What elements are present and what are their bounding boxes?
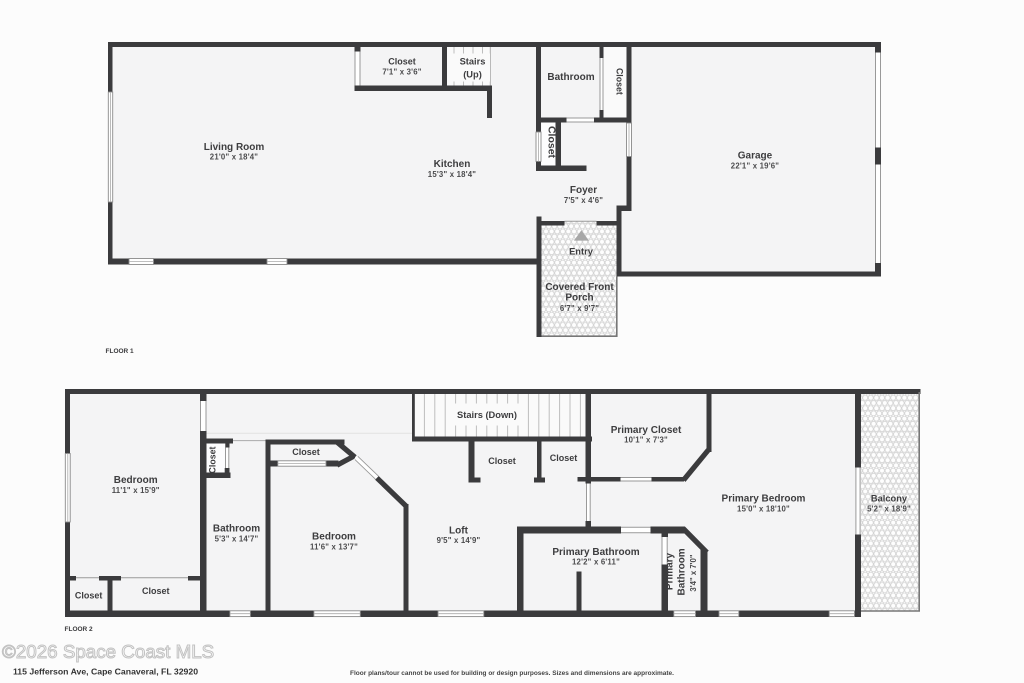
svg-text:Covered Front: Covered Front [545,282,614,293]
svg-text:FLOOR 1: FLOOR 1 [106,348,135,355]
svg-text:115 Jefferson Ave, Cape Canave: 115 Jefferson Ave, Cape Canaveral, FL 32… [13,666,198,676]
svg-text:6'7" x 9'7": 6'7" x 9'7" [560,304,599,313]
svg-text:15'0" x 18'10": 15'0" x 18'10" [737,505,790,514]
svg-text:22'1" x 19'6": 22'1" x 19'6" [731,161,779,170]
svg-text:11'6" x 13'7": 11'6" x 13'7" [310,542,358,551]
svg-text:Loft: Loft [449,525,469,536]
svg-text:Bedroom: Bedroom [114,475,158,486]
svg-text:Closet: Closet [546,126,558,159]
svg-text:15'3" x 18'4": 15'3" x 18'4" [428,170,476,179]
svg-text:Garage: Garage [738,151,773,162]
svg-text:Bedroom: Bedroom [312,532,356,543]
svg-text:Closet: Closet [208,446,218,473]
svg-text:Bathroom: Bathroom [676,548,687,595]
svg-text:(Up): (Up) [463,69,482,79]
svg-text:9'5" x 14'9": 9'5" x 14'9" [437,536,481,545]
svg-text:11'1" x 15'9": 11'1" x 15'9" [112,486,160,495]
svg-text:Closet: Closet [75,590,103,600]
svg-text:Kitchen: Kitchen [434,159,471,170]
svg-text:7'1" x 3'6": 7'1" x 3'6" [382,67,421,76]
svg-text:©2026 Space Coast MLS: ©2026 Space Coast MLS [2,641,214,662]
svg-text:Bathroom: Bathroom [547,72,594,83]
svg-text:Closet: Closet [388,57,416,67]
svg-text:Closet: Closet [488,456,516,466]
svg-text:Floor plans/tour cannot be use: Floor plans/tour cannot be used for buil… [350,670,674,677]
svg-text:Porch: Porch [565,293,593,304]
svg-text:Stairs (Down): Stairs (Down) [457,410,517,420]
svg-text:3'4" x 7'0": 3'4" x 7'0" [689,554,698,591]
svg-text:Bathroom: Bathroom [213,524,260,535]
svg-text:Closet: Closet [550,453,578,463]
svg-text:Primary: Primary [665,552,676,590]
svg-text:Closet: Closet [292,447,320,457]
svg-text:10'1" x 7'3": 10'1" x 7'3" [624,436,668,445]
svg-text:Stairs: Stairs [460,56,486,66]
svg-text:FLOOR 2: FLOOR 2 [65,626,94,633]
svg-text:Primary Closet: Primary Closet [611,425,682,436]
svg-text:12'2" x 6'11": 12'2" x 6'11" [572,558,620,567]
svg-text:7'5" x 4'6": 7'5" x 4'6" [564,196,603,205]
svg-text:Primary Bedroom: Primary Bedroom [722,494,806,505]
svg-text:Entry: Entry [569,247,594,257]
svg-text:Closet: Closet [615,68,625,95]
svg-text:Balcony: Balcony [871,494,908,504]
svg-text:5'3" x 14'7": 5'3" x 14'7" [215,534,259,543]
svg-text:Closet: Closet [142,586,170,596]
svg-text:21'0" x 18'4": 21'0" x 18'4" [210,153,258,162]
svg-text:5'2" x 18'9": 5'2" x 18'9" [867,505,911,514]
svg-text:Living Room: Living Room [204,142,265,153]
svg-text:Foyer: Foyer [570,185,597,196]
svg-text:Primary Bathroom: Primary Bathroom [552,547,639,558]
